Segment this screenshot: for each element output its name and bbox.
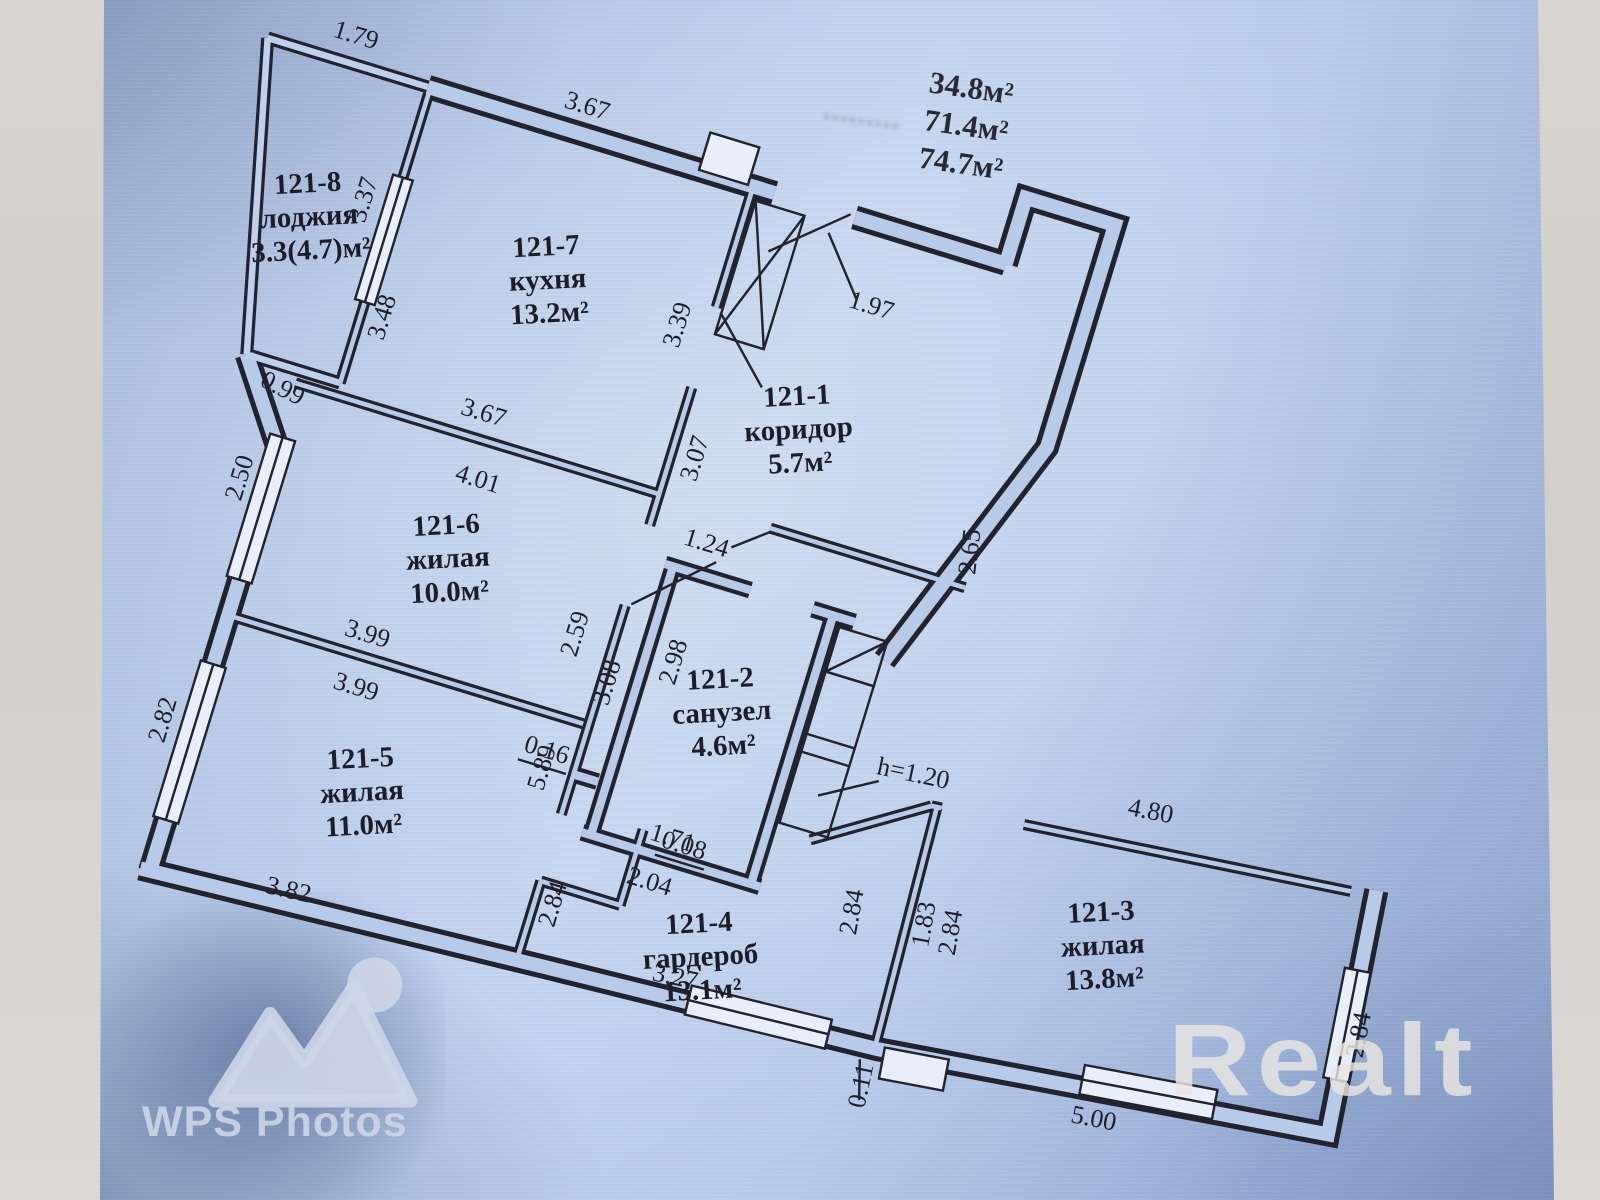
room-label-121-5: 121-5 жилая 11.0м² <box>318 740 407 843</box>
svg-text:11.0м²: 11.0м² <box>324 807 403 843</box>
dim-bottom-offset: 0.11 <box>842 1061 880 1111</box>
dim-r6-right: 2.59 <box>554 608 595 660</box>
dim-entry-side: 2.65 <box>952 527 986 576</box>
svg-text:жилая: жилая <box>319 774 404 810</box>
dim-ward-right: 2.84 <box>833 887 869 937</box>
room-label-121-6: 121-6 жилая 10.0м² <box>403 507 492 610</box>
photo-of-screen: 1.79 3.37 3.48 0.99 3.67 3.67 3.39 3.07 … <box>0 0 1600 1200</box>
dim-r3-top: 4.80 <box>1126 792 1176 829</box>
dim-entry-width: 1.97 <box>846 285 898 326</box>
room-id: 121-8 <box>273 166 342 201</box>
svg-text:санузел: санузел <box>671 694 772 731</box>
room-area: 3.3(4.7)м² <box>250 231 371 269</box>
area-summary: 34.8м² 71.4м² 74.7м² ……… <box>816 50 1016 186</box>
svg-text:121-3: 121-3 <box>1067 894 1136 929</box>
entry-door-leaf <box>768 194 850 271</box>
svg-text:121-6: 121-6 <box>412 507 481 542</box>
area-total-with-balcony: 74.7м² <box>917 140 1006 186</box>
svg-text:жилая: жилая <box>1060 927 1145 963</box>
svg-text:4.6м²: 4.6м² <box>691 728 757 763</box>
dim-loggia-top: 1.79 <box>330 14 382 55</box>
illegible-smudge: ……… <box>821 95 902 135</box>
svg-text:кухня: кухня <box>508 262 587 298</box>
leader-bath-gap <box>731 522 770 556</box>
svg-text:121-4: 121-4 <box>664 906 733 941</box>
dim-r6-top: 4.01 <box>452 458 504 499</box>
room-labels: 121-8 лоджия 3.3(4.7)м² 121-7 кухня 13.2… <box>47 129 1313 1148</box>
dim-duct-height: h=1.20 <box>875 751 953 795</box>
dim-bath-gap: 1.24 <box>681 522 733 563</box>
wps-logo-icon <box>215 957 411 1100</box>
room-label-121-2: 121-2 санузел 4.6м² <box>670 660 774 764</box>
room-label-121-3: 121-3 жилая 13.8м² <box>1058 894 1147 997</box>
room-label-121-1: 121-1 коридор 5.7м² <box>742 377 855 481</box>
svg-text:гардероб: гардероб <box>642 938 759 976</box>
svg-text:жилая: жилая <box>405 540 490 576</box>
room-label-121-7: 121-7 кухня 13.2м² <box>506 228 590 331</box>
svg-text:121-5: 121-5 <box>326 741 395 776</box>
svg-text:121-2: 121-2 <box>686 661 755 696</box>
svg-text:13.8м²: 13.8м² <box>1064 961 1144 997</box>
svg-text:121-7: 121-7 <box>512 229 581 264</box>
svg-text:121-1: 121-1 <box>762 378 831 413</box>
room-name: лоджия <box>260 198 359 235</box>
svg-text:коридор: коридор <box>744 411 854 449</box>
svg-text:10.0м²: 10.0м² <box>409 574 489 610</box>
dim-kitchen-right-up: 3.39 <box>656 299 697 351</box>
kitchen-door-leaf <box>703 313 779 388</box>
svg-text:13.1м²: 13.1м² <box>662 972 742 1008</box>
room-label-121-8: 121-8 лоджия 3.3(4.7)м² <box>247 164 372 269</box>
dim-kitchen-bottom: 3.67 <box>458 392 510 433</box>
dim-r5-top: 3.99 <box>330 666 382 707</box>
svg-text:13.2м²: 13.2м² <box>509 295 589 331</box>
realt-logo: Realt <box>1168 1002 1478 1119</box>
dim-bath-wall: 3.08 <box>586 656 627 708</box>
svg-text:5.7м²: 5.7м² <box>767 445 833 480</box>
wps-watermark-text: WPS Photos <box>142 1098 408 1147</box>
